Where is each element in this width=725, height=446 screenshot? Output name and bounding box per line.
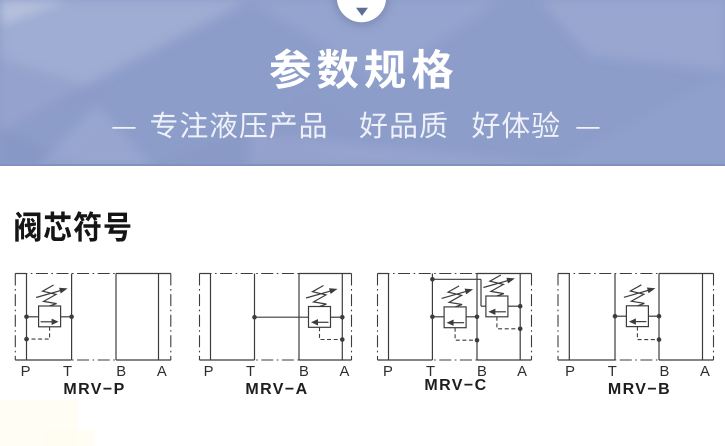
svg-text:A: A [339,364,349,380]
svg-text:P: P [204,364,214,380]
svg-text:T: T [63,364,72,380]
svg-text:A: A [157,364,167,380]
svg-text:B: B [659,364,669,380]
svg-text:P: P [21,364,31,380]
svg-text:MRV−P: MRV−P [63,381,125,398]
svg-text:MRV−B: MRV−B [608,381,671,398]
svg-text:B: B [299,364,309,380]
svg-text:MRV−C: MRV−C [424,377,487,394]
svg-text:B: B [116,364,126,380]
svg-text:MRV−A: MRV−A [245,381,308,398]
svg-text:T: T [246,364,255,380]
svg-text:A: A [700,364,710,380]
svg-text:P: P [565,364,575,380]
svg-text:P: P [383,364,393,380]
svg-text:A: A [517,364,527,380]
svg-text:T: T [608,364,617,380]
